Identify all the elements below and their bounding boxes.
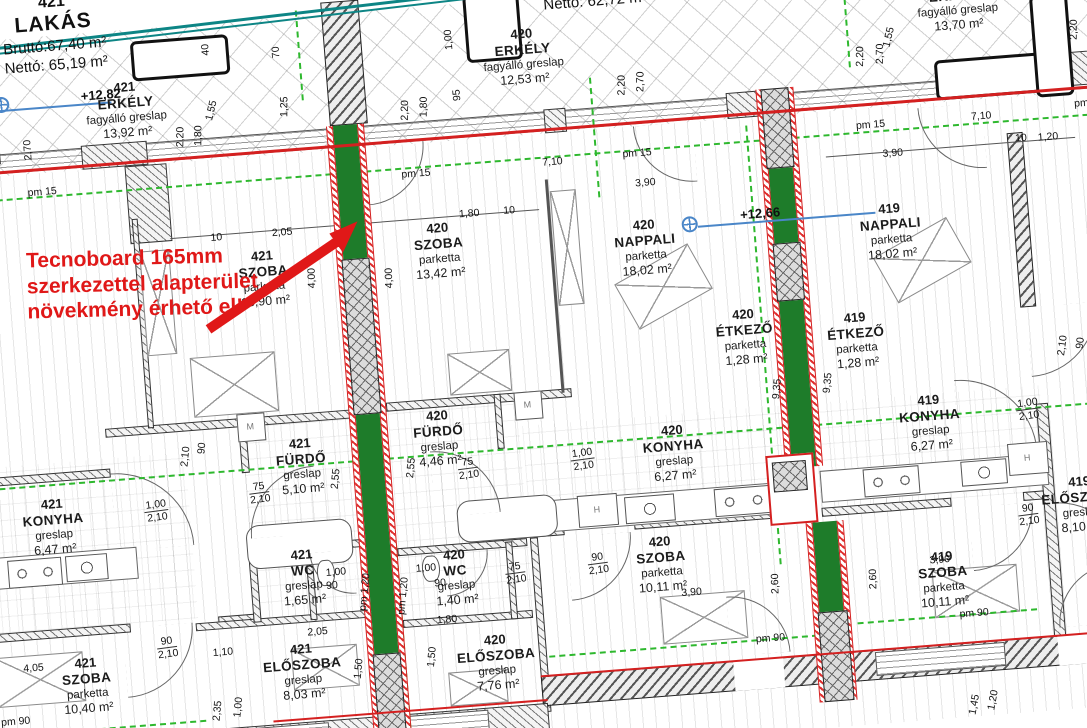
door-threshold xyxy=(733,657,785,691)
dimension-text: pm xyxy=(1074,97,1087,110)
room-label-419-étkező: 419ÉTKEZŐparketta1,28 m² xyxy=(825,308,887,374)
dimension-text: 2,70 xyxy=(21,139,35,160)
stove xyxy=(714,485,774,517)
door-threshold xyxy=(1057,632,1087,666)
dimension-text: 1,002,10 xyxy=(569,445,596,473)
room-label-420-konyha: 420KONYHAgreslap6,27 m² xyxy=(641,420,707,486)
dimension-text: 10 xyxy=(1015,132,1028,145)
balcony-planter xyxy=(1029,0,1075,98)
dimension-text: pm 15 xyxy=(855,118,885,132)
dimension-text: 902,10 xyxy=(1017,501,1041,528)
room-label-421-fürdő: 421FÜRDŐgreslap5,10 m² xyxy=(274,434,329,499)
fixture-label-m: M xyxy=(246,421,254,432)
dimension-text: 1,00 xyxy=(231,696,245,717)
annotation-arrow xyxy=(184,210,378,349)
kitchen-sink xyxy=(65,553,109,582)
dimension-text: 1,20 xyxy=(1037,130,1058,144)
dimension-text: 7,10 xyxy=(542,155,563,169)
dimension-text: 2,10 xyxy=(178,446,192,467)
dimension-text: 90 xyxy=(434,577,447,590)
level-value: +12,82 xyxy=(80,86,121,104)
dimension-text: 1,80 xyxy=(192,125,204,146)
dimension-text: 2,55 xyxy=(329,468,343,489)
dimension-text: 2,05 xyxy=(307,625,328,639)
furniture xyxy=(447,349,512,396)
room-label-419-előszoba: 419ELŐSZOBAgreslap8,10 m² xyxy=(1040,471,1087,539)
dimension-text: 2,20 xyxy=(1068,19,1080,40)
room-label-421-wc: 421WCgreslap1,65 m² xyxy=(280,545,327,610)
wall-nook-core xyxy=(772,460,808,493)
room-label-420-nappali: 420NAPPALIparketta18,02 m² xyxy=(613,215,679,281)
balcony-planter xyxy=(130,34,231,82)
fixture-label-m: M xyxy=(523,399,531,410)
stove xyxy=(7,557,63,589)
dimension-text: 2,20 xyxy=(616,75,628,96)
dimension-text: 1,00 xyxy=(325,565,346,579)
dimension-text: 2,55 xyxy=(404,457,418,478)
dimension-text: 1,50 xyxy=(425,646,439,667)
dimension-text: pm 90 xyxy=(755,631,785,645)
dimension-text: 3,90 xyxy=(681,586,702,600)
dimension-text: 2,60 xyxy=(769,573,782,594)
room-label-420-előszoba: 420ELŐSZOBAgreslap7,76 m² xyxy=(455,629,538,697)
level-value: +12,66 xyxy=(740,204,781,222)
dimension-text: 4,00 xyxy=(383,268,396,289)
dimension-text: 2,35 xyxy=(211,700,225,721)
dimension-text: 9,35 xyxy=(821,372,835,393)
dimension-text: 1,80 xyxy=(459,207,480,221)
kitchen-sink xyxy=(624,493,676,524)
dimension-text: 70 xyxy=(270,46,283,59)
dimension-text: pm 90 xyxy=(1,715,31,728)
dimension-text: 3,90 xyxy=(635,176,656,190)
dimension-text: 2,20 xyxy=(399,100,411,121)
stove xyxy=(863,465,921,497)
dimension-text: pm 90 xyxy=(959,606,989,620)
dimension-text: 2,20 xyxy=(854,46,866,67)
title-block-421: 421 LAKÁS Bruttó:67,40 m² Nettó: 65,19 m… xyxy=(0,0,137,80)
dimension-text: 1,002,10 xyxy=(1015,395,1042,423)
dimension-text: 902,10 xyxy=(156,634,180,661)
room-label-421-konyha: 421KONYHAgreslap6,47 m² xyxy=(21,494,87,560)
dimension-text: 2,20 xyxy=(174,127,186,148)
floor-plan-canvas: 421 LAKÁS Bruttó:67,40 m² Nettó: 65,19 m… xyxy=(0,0,1087,728)
dimension-text: 1,00 xyxy=(415,561,436,575)
dimension-text: 3,90 xyxy=(929,553,950,567)
kitchen-sink xyxy=(960,458,1008,487)
room-label-420-étkező: 420ÉTKEZŐparketta1,28 m² xyxy=(714,304,776,370)
floor-plan-viewport: 421 LAKÁS Bruttó:67,40 m² Nettó: 65,19 m… xyxy=(0,0,1087,728)
dimension-text: 1,002,10 xyxy=(143,497,170,525)
dimension-text: 1,25 xyxy=(278,97,290,118)
dimension-text: pm 15 xyxy=(27,185,57,199)
dimension-text: 752,10 xyxy=(504,559,528,586)
dimension-text: 95 xyxy=(450,89,463,102)
room-label-419-konyha: 419KONYHAgreslap6,27 m² xyxy=(897,390,963,456)
dimension-text: 90 xyxy=(326,579,339,592)
dimension-text: 40 xyxy=(199,43,212,56)
dimension-text: 3,90 xyxy=(882,146,903,160)
dimension-text: 1,00 xyxy=(442,29,456,50)
fixture-label-h: H xyxy=(593,504,600,514)
room-label-420-szoba: 420SZOBAparketta13,42 m² xyxy=(412,218,466,283)
dimension-text: 1,80 xyxy=(436,613,457,627)
dimension-text: 10 xyxy=(503,204,516,217)
dimension-text: 2,70 xyxy=(874,44,886,65)
dimension-text: 752,10 xyxy=(248,479,272,506)
room-label-421-szoba: 421SZOBAparketta10,40 m² xyxy=(60,653,114,718)
dimension-text: 752,10 xyxy=(456,455,480,482)
dimension-text: 7,10 xyxy=(971,109,992,123)
fixture-label-h: H xyxy=(1023,452,1030,462)
dimension-text: pm 15 xyxy=(401,167,431,181)
dimension-text: 902,10 xyxy=(586,550,610,577)
party-wall-core xyxy=(773,242,805,302)
dimension-text: pm 15 xyxy=(622,146,652,160)
dimension-text: 9,35 xyxy=(770,378,784,399)
dimension-text: 1,50 xyxy=(352,658,366,679)
dimension-text: 2,60 xyxy=(867,569,880,590)
dimension-text: 1,10 xyxy=(212,645,233,659)
dimension-text: 2,70 xyxy=(634,71,646,92)
room-label-419-nappali: 419NAPPALIparketta18,02 m² xyxy=(858,198,924,264)
bed xyxy=(190,351,279,417)
dimension-text: 90 xyxy=(1074,336,1087,349)
dimension-text: 90 xyxy=(195,442,208,455)
room-label-421-előszoba: 421ELŐSZOBAgreslap8,03 m² xyxy=(261,638,344,706)
dimension-text: 4,05 xyxy=(23,661,44,675)
room-label-420-erkély: 420ERKÉLYfagyálló greslap12,53 m² xyxy=(481,23,566,91)
dimension-text: 1,80 xyxy=(418,97,430,118)
room-label-x-erkély: ERKÉLYfagyálló greslap13,70 m² xyxy=(916,0,1000,37)
